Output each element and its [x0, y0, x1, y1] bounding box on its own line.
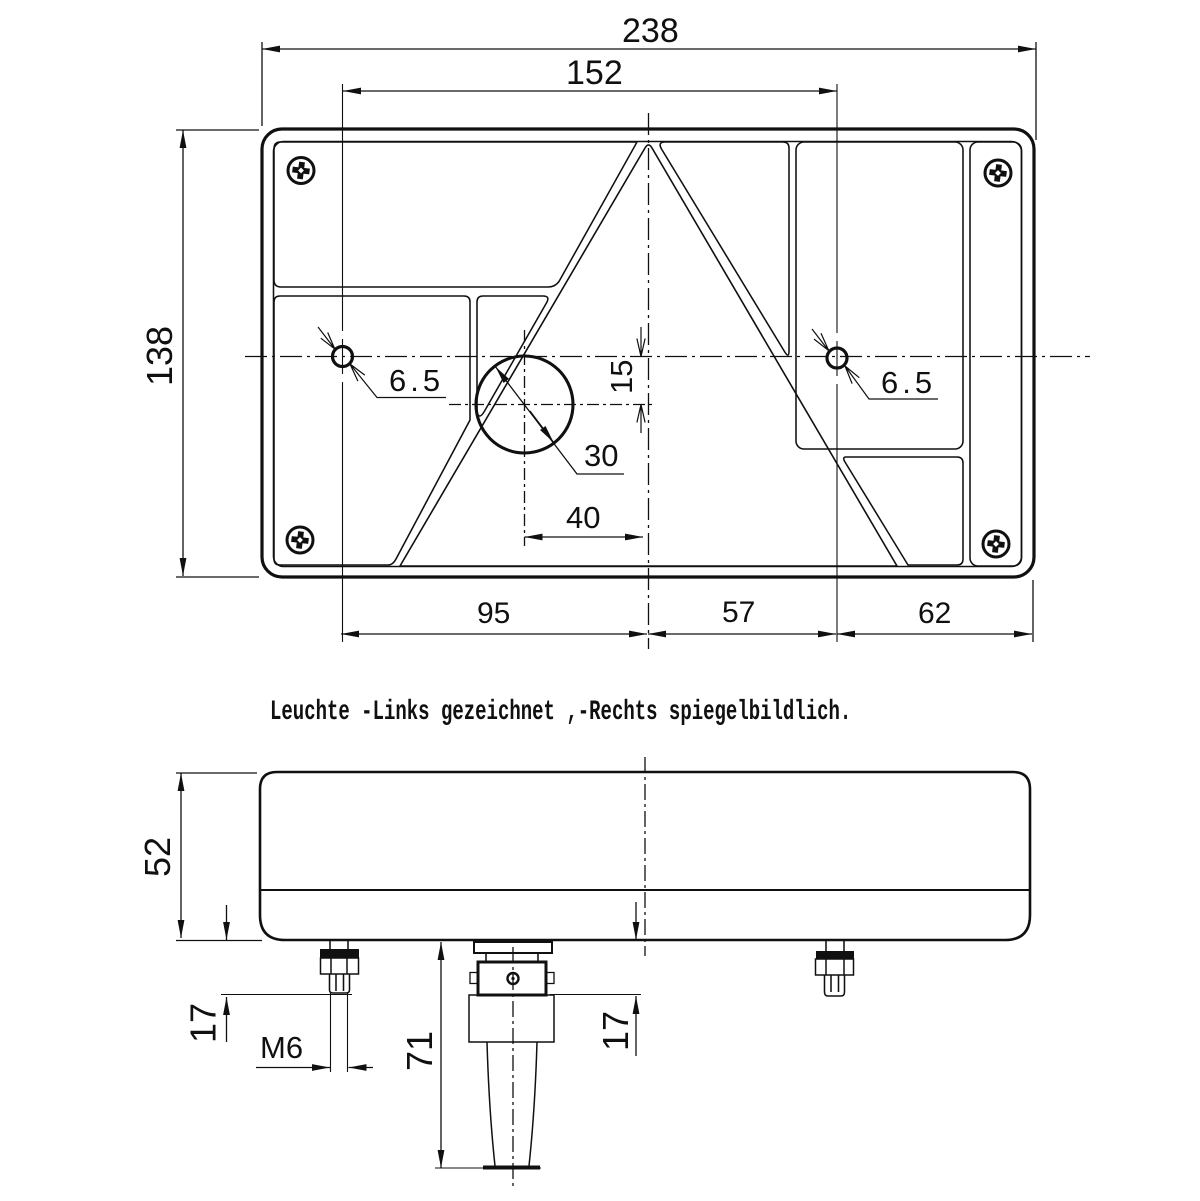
svg-text:152: 152: [566, 54, 623, 92]
svg-text:6.5: 6.5: [389, 363, 444, 398]
svg-text:57: 57: [722, 596, 755, 629]
svg-text:15: 15: [604, 360, 639, 394]
svg-text:71: 71: [399, 1031, 440, 1071]
svg-text:238: 238: [622, 12, 679, 50]
svg-text:62: 62: [918, 597, 951, 630]
svg-text:52: 52: [137, 837, 178, 877]
svg-text:Leuchte -Links gezeichnet ,-Re: Leuchte -Links gezeichnet ,-Rechts spieg…: [270, 697, 851, 728]
svg-text:30: 30: [584, 438, 618, 473]
svg-text:17: 17: [595, 1011, 636, 1051]
svg-text:M6: M6: [260, 1030, 303, 1065]
svg-text:17: 17: [183, 1003, 224, 1043]
svg-text:138: 138: [139, 326, 180, 386]
svg-text:6.5: 6.5: [881, 365, 936, 400]
svg-text:95: 95: [477, 597, 510, 630]
svg-text:40: 40: [566, 500, 600, 535]
